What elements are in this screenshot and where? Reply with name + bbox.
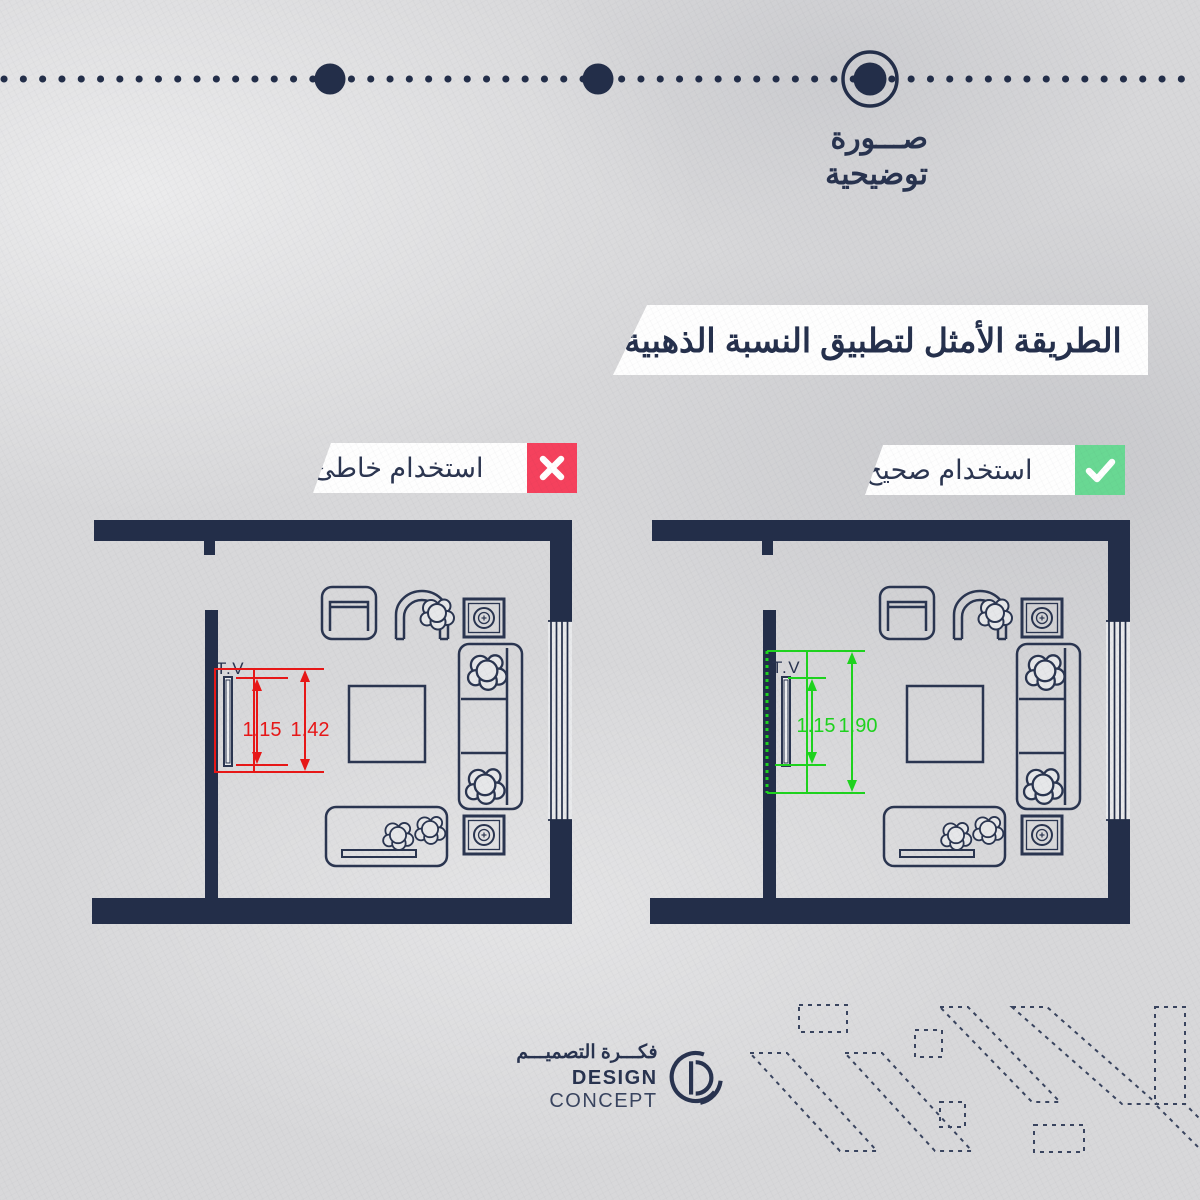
timeline-node-3: [854, 63, 887, 96]
floor-plan-correct: T.V 1.15 1.90: [650, 514, 1132, 928]
correct-badge: [1075, 445, 1125, 495]
caption-line-2: توضيحية: [825, 157, 928, 193]
caption-line-1: صـــورة: [825, 121, 928, 157]
dimension-value-wall-correct: 1.90: [839, 715, 878, 737]
logo-arabic-text: فكـــرة التصميـــم: [478, 1041, 658, 1064]
design-concept-logo-icon: [668, 1046, 723, 1108]
timeline-node-2: [583, 64, 614, 95]
label-correct-text: استخدام صحيح: [865, 445, 1075, 495]
x-icon: [527, 443, 577, 493]
dimension-value-tv-correct: 1.15: [797, 715, 836, 737]
logo-english-bold: DESIGN: [572, 1067, 658, 1089]
dimension-value-tv-wrong: 1.15: [243, 719, 282, 741]
title-banner: الطريقة الأمثل لتطبيق النسبة الذهبية:: [613, 305, 1148, 375]
brand-logo: فكـــرة التصميـــم DESIGN CONCEPT: [478, 1042, 723, 1112]
wrong-badge: [527, 443, 577, 493]
label-correct-usage: استخدام صحيح: [865, 445, 1125, 495]
page-title: الطريقة الأمثل لتطبيق النسبة الذهبية:: [613, 321, 1122, 360]
check-icon: [1075, 445, 1125, 495]
label-wrong-usage: استخدام خاطئ: [313, 443, 577, 493]
logo-english-text: DESIGN CONCEPT: [478, 1067, 658, 1113]
timeline-node-1: [315, 64, 346, 95]
timeline-caption: صـــورة توضيحية: [825, 121, 928, 193]
floor-plan-wrong: T.V 1.15 1.42: [92, 514, 574, 928]
label-wrong-text: استخدام خاطئ: [313, 443, 527, 493]
dimension-value-wall-wrong: 1.42: [291, 719, 330, 741]
timeline: [0, 0, 1200, 160]
logo-english-light: CONCEPT: [549, 1090, 657, 1112]
poster: صـــورة توضيحية الطريقة الأمثل لتطبيق ال…: [0, 0, 1200, 1200]
decorative-dashed-shapes: [742, 980, 1200, 1160]
tv-label-correct: T.V: [772, 658, 801, 677]
